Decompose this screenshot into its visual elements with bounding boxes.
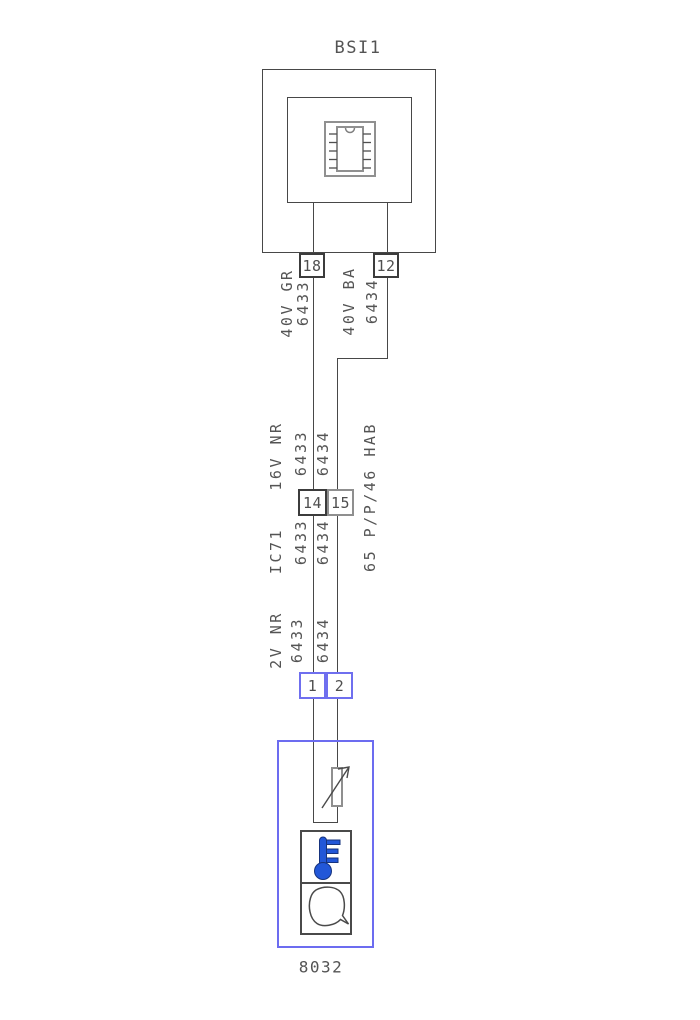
sensor-housing-icon — [302, 884, 350, 933]
wiring-diagram: BSI1 18 12 — [0, 0, 700, 1020]
pin-1-label: 1 — [308, 677, 318, 695]
connector-label-ic71: IC71 — [267, 528, 285, 574]
component-8032-label: 8032 — [299, 958, 344, 977]
pin-18-label: 18 — [302, 257, 321, 275]
component-pin-2: 2 — [326, 672, 353, 699]
wire-number-6433-above-mid: 6433 — [292, 430, 310, 476]
wire-number-6434-bottom: 6434 — [314, 617, 332, 663]
wire-6434-middle — [337, 516, 338, 672]
pin-2-label: 2 — [335, 677, 345, 695]
wire-stub-left — [313, 203, 314, 253]
pin-12-label: 12 — [376, 257, 395, 275]
wire-number-6434-below-mid: 6434 — [314, 519, 332, 565]
wire-6434-upper — [337, 358, 338, 489]
connector-pin-14: 14 — [298, 489, 327, 516]
component-icon-frame — [300, 830, 352, 935]
wire-number-6434-top: 6434 — [363, 278, 381, 324]
thermometer-icon — [302, 832, 350, 882]
pin-15-label: 15 — [331, 494, 350, 512]
wire-6434-drop — [387, 277, 388, 358]
connector-location-label: 65 P/P/46 HAB — [361, 422, 379, 572]
wire-6434-elbow — [337, 358, 388, 359]
bsi-pin-18: 18 — [299, 253, 325, 278]
wire-label-40v-ba: 40V BA — [340, 266, 358, 335]
component-pin-1: 1 — [299, 672, 326, 699]
wire-label-16v-nr: 16V NR — [267, 421, 285, 490]
wire-stub-right — [387, 203, 388, 253]
wire-number-6433-top: 6433 — [294, 280, 312, 326]
wire-number-6434-above-mid: 6434 — [314, 430, 332, 476]
connector-pin-15: 15 — [327, 489, 354, 516]
ic-chip-icon — [324, 121, 376, 177]
pin-14-label: 14 — [303, 494, 322, 512]
variable-resistor-arrow-icon — [316, 758, 356, 812]
page-title: BSI1 — [335, 38, 382, 58]
bsi-pin-12: 12 — [373, 253, 399, 278]
wire-number-6433-bottom: 6433 — [288, 617, 306, 663]
wire-label-2v-nr: 2V NR — [267, 611, 285, 669]
wire-number-6433-below-mid: 6433 — [292, 519, 310, 565]
